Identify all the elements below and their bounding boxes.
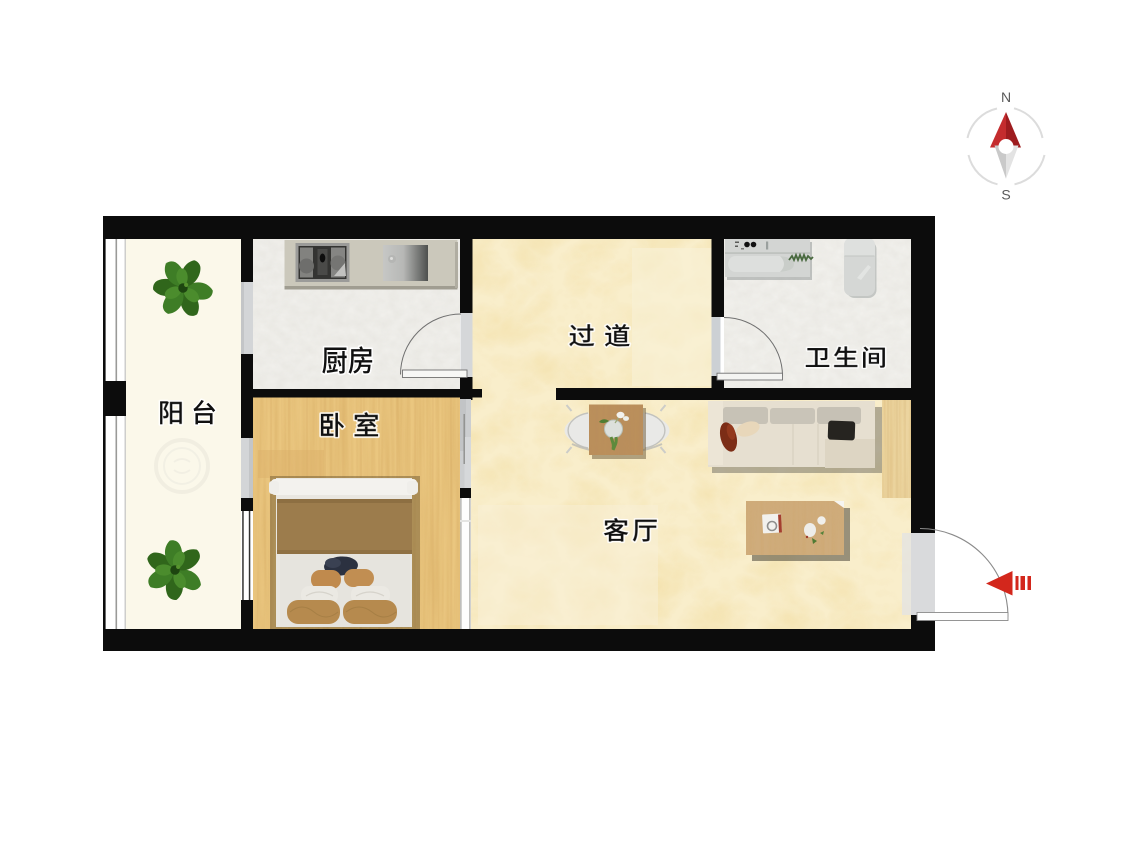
svg-text:S: S	[1001, 187, 1010, 203]
svg-text:N: N	[1001, 89, 1011, 105]
